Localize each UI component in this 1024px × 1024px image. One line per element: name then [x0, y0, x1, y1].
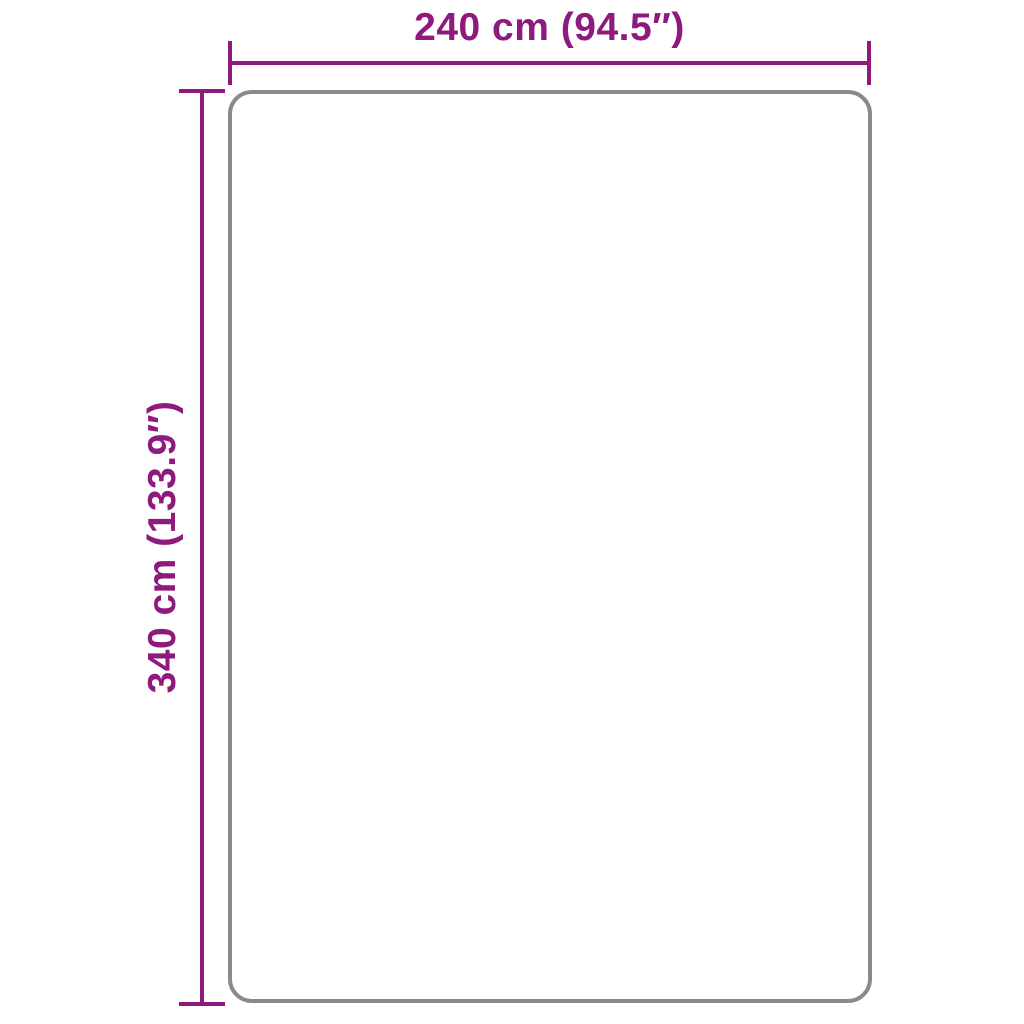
width-dimension-tick-left	[228, 41, 232, 85]
height-dimension-line	[200, 89, 204, 1006]
width-dimension-line	[228, 61, 871, 65]
product-outline	[228, 90, 872, 1003]
height-dimension-tick-bottom	[179, 1002, 225, 1006]
width-dimension-tick-right	[867, 41, 871, 85]
height-dimension-tick-top	[179, 89, 225, 93]
width-dimension-label: 240 cm (94.5″)	[228, 6, 871, 50]
height-dimension-label: 340 cm (133.9″)	[141, 401, 185, 694]
dimension-diagram: 240 cm (94.5″) 340 cm (133.9″)	[0, 0, 1024, 1024]
